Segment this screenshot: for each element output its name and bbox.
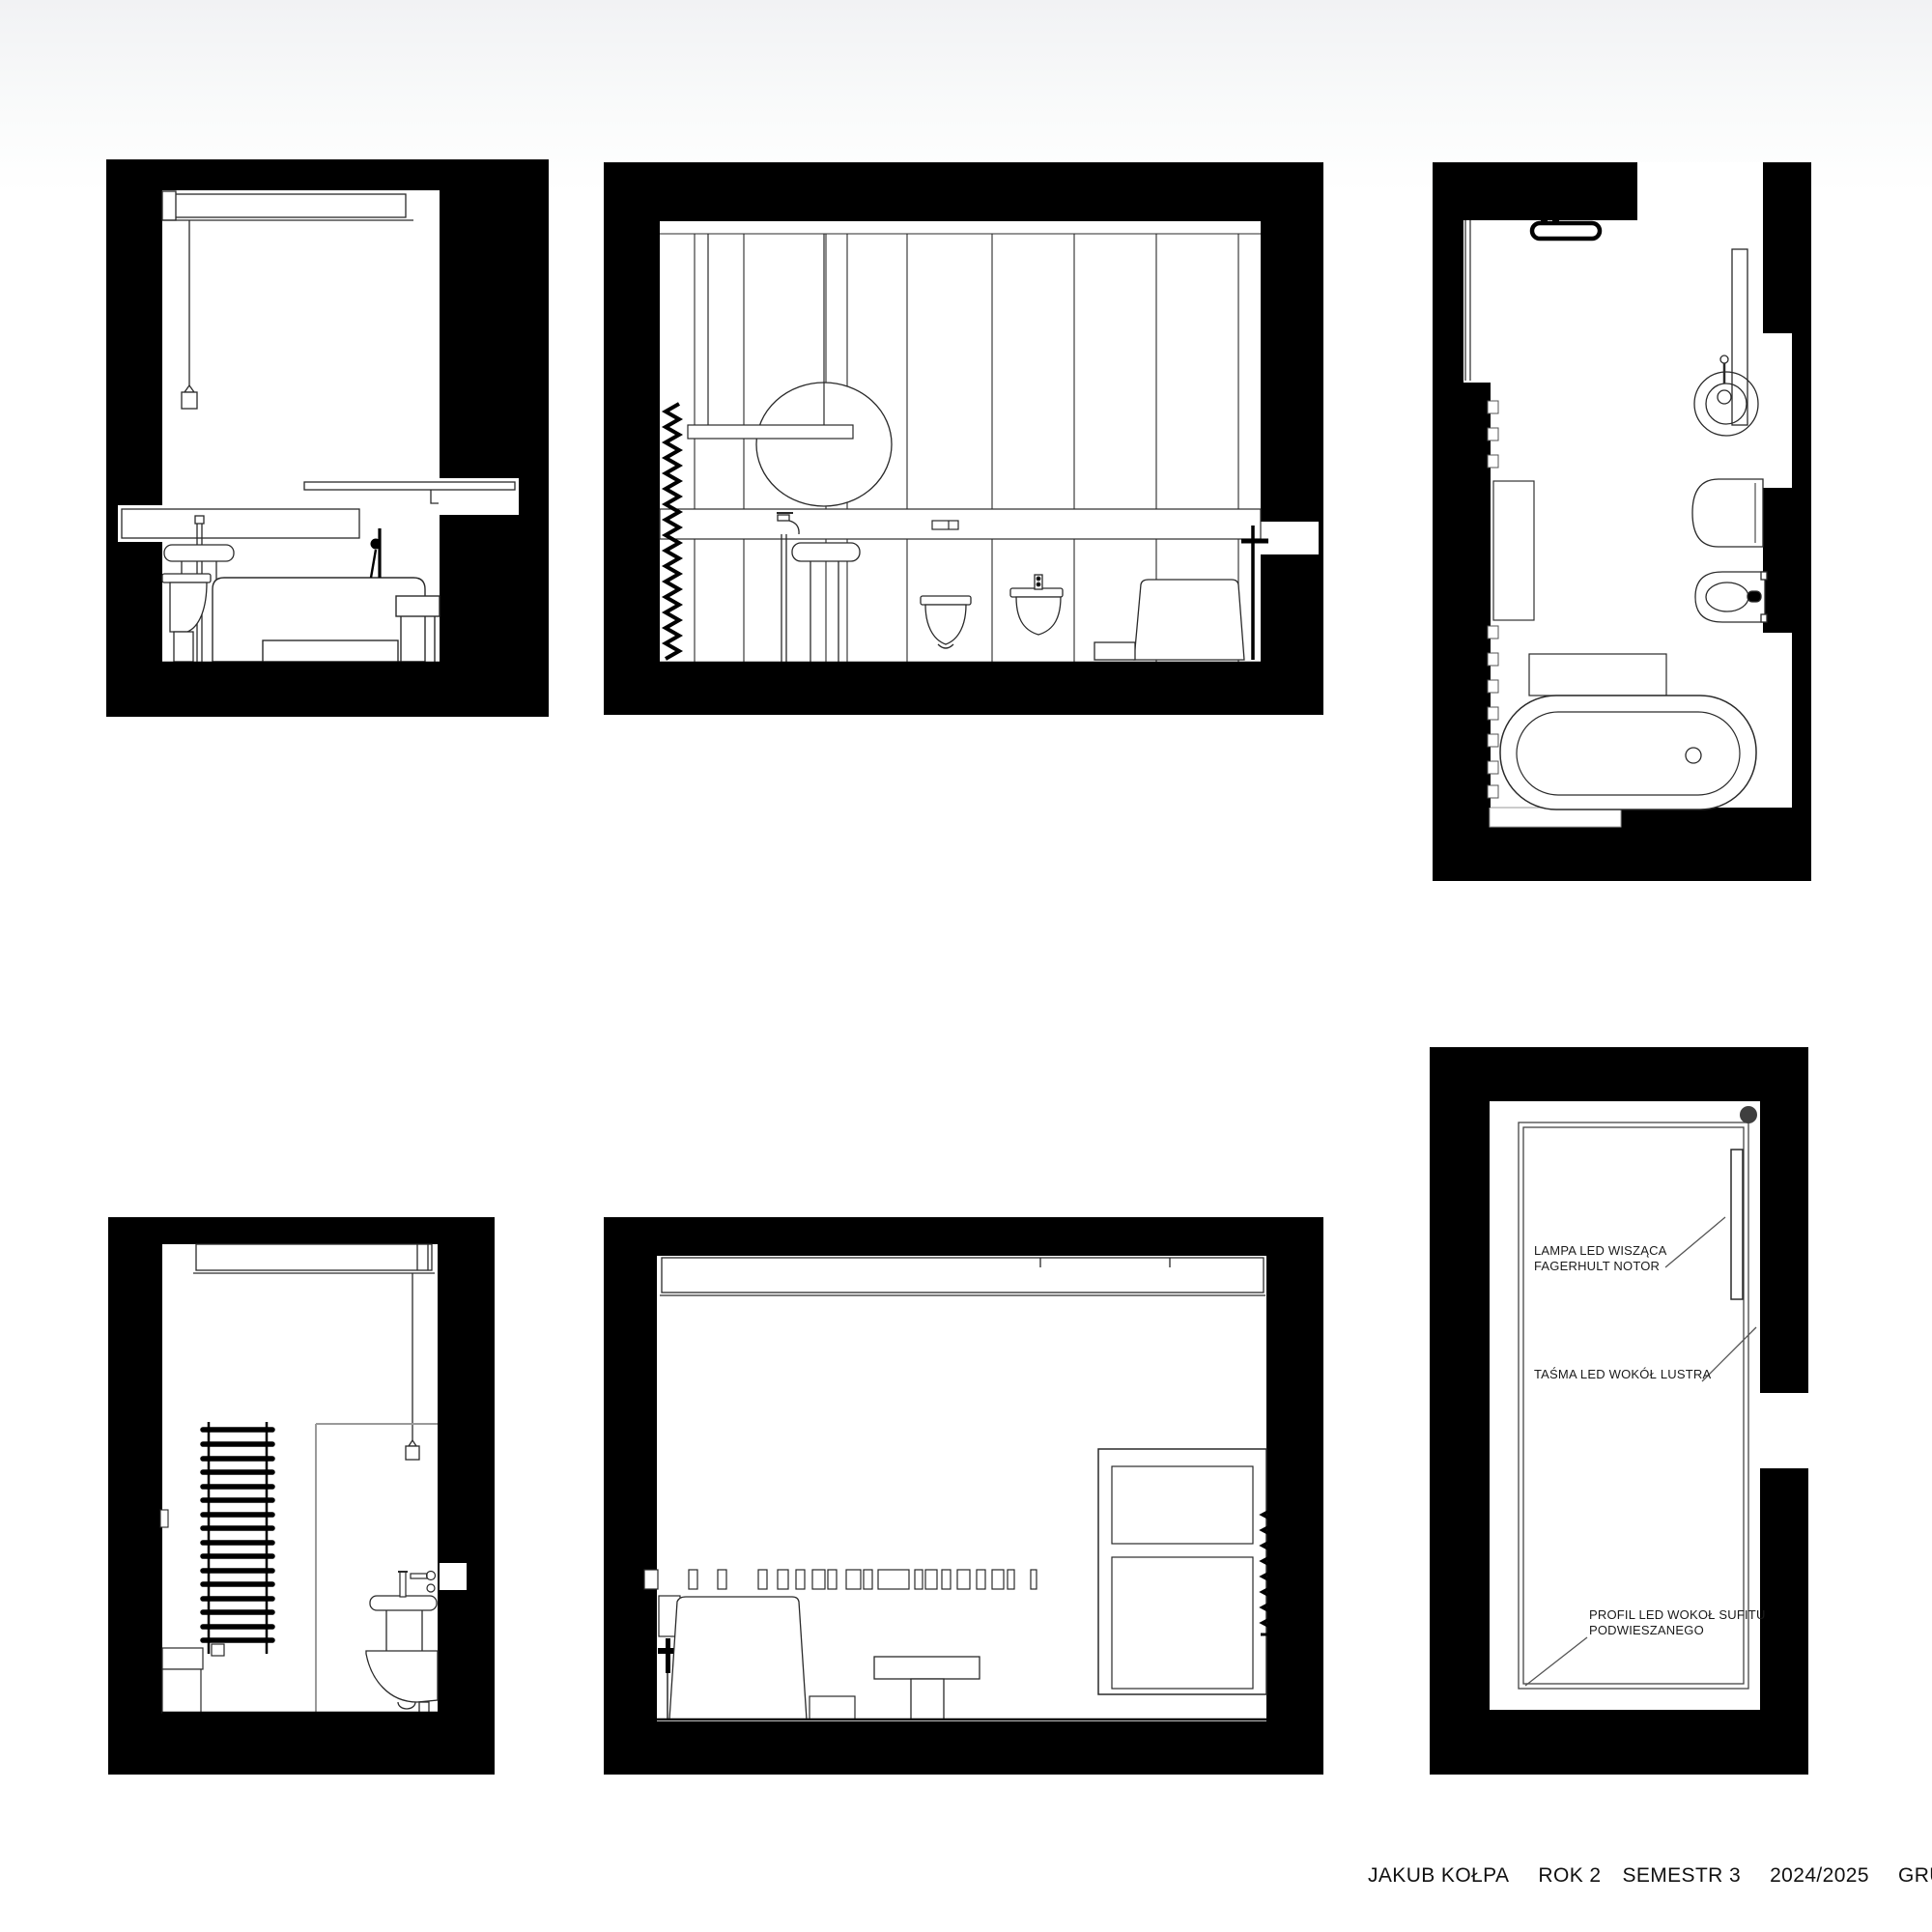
annotation-ceiling-profile-line2: PODWIESZANEGO (1589, 1623, 1766, 1638)
step-box (810, 1696, 855, 1719)
study-year: ROK 2 (1538, 1864, 1601, 1888)
ceiling-dot (1740, 1106, 1757, 1123)
door-threshold (1490, 808, 1621, 827)
annotation-ceiling-profile: PROFIL LED WOKOŁ SUFITU PODWIESZANEGO (1589, 1607, 1766, 1638)
annotation-led-lamp: LAMPA LED WISZĄCA FAGERHULT NOTOR (1534, 1243, 1667, 1274)
bathtub (213, 578, 440, 662)
ceiling-light-bar (193, 1244, 435, 1273)
group: GRUPA AM (1898, 1864, 1932, 1888)
annotation-ceiling-profile-line1: PROFIL LED WOKOŁ SUFITU (1589, 1607, 1766, 1623)
plan-bidet (1695, 572, 1767, 622)
plan-shelf (1529, 654, 1666, 696)
counter-shelf (122, 509, 359, 538)
bathroom-floor-plan (1433, 162, 1811, 881)
section-a-drawing (106, 159, 549, 717)
door-handle (160, 1510, 168, 1527)
bathroom-section-d (604, 1217, 1323, 1775)
section-d-drawing (604, 1217, 1323, 1775)
bathroom-section-b (604, 162, 1323, 715)
annotation-led-lamp-line1: LAMPA LED WISZĄCA (1534, 1243, 1667, 1259)
bathroom-section-c (108, 1217, 495, 1775)
academic-year: 2024/2025 (1770, 1864, 1869, 1888)
section-b-drawing (604, 162, 1323, 715)
window (1098, 1449, 1266, 1694)
author-name: JAKUB KOŁPA (1368, 1864, 1509, 1888)
plan-toilet (1692, 479, 1763, 547)
annotation-mirror-tape-line1: TAŚMA LED WOKÓŁ LUSTRA (1534, 1367, 1711, 1382)
ceiling-plan: LAMPA LED WISZĄCA FAGERHULT NOTOR TAŚMA … (1430, 1047, 1808, 1775)
flush-plate (932, 521, 958, 529)
ceiling-light-bar (162, 191, 413, 220)
floor-plan-drawing (1433, 162, 1811, 881)
ceiling-light-bar (660, 1258, 1265, 1295)
plan-cabinet (1493, 481, 1534, 620)
bathtub-side (669, 1597, 807, 1719)
low-cabinet (162, 1648, 203, 1713)
bathroom-section-a (106, 159, 549, 717)
title-block: JAKUB KOŁPA ROK 2 SEMESTR 3 2024/2025 GR… (1368, 1864, 1932, 1888)
annotation-mirror-tape: TAŚMA LED WOKÓŁ LUSTRA (1534, 1367, 1711, 1382)
annotation-led-lamp-line2: FAGERHULT NOTOR (1534, 1259, 1667, 1274)
ceiling-plan-drawing (1430, 1047, 1808, 1775)
section-c-drawing (108, 1217, 495, 1775)
counter-band (660, 509, 1261, 539)
led-pendant-bar (1731, 1150, 1743, 1299)
plan-bathtub (1500, 696, 1756, 810)
drawing-sheet: LAMPA LED WISZĄCA FAGERHULT NOTOR TAŚMA … (0, 0, 1932, 1932)
semester: SEMESTR 3 (1622, 1864, 1741, 1888)
